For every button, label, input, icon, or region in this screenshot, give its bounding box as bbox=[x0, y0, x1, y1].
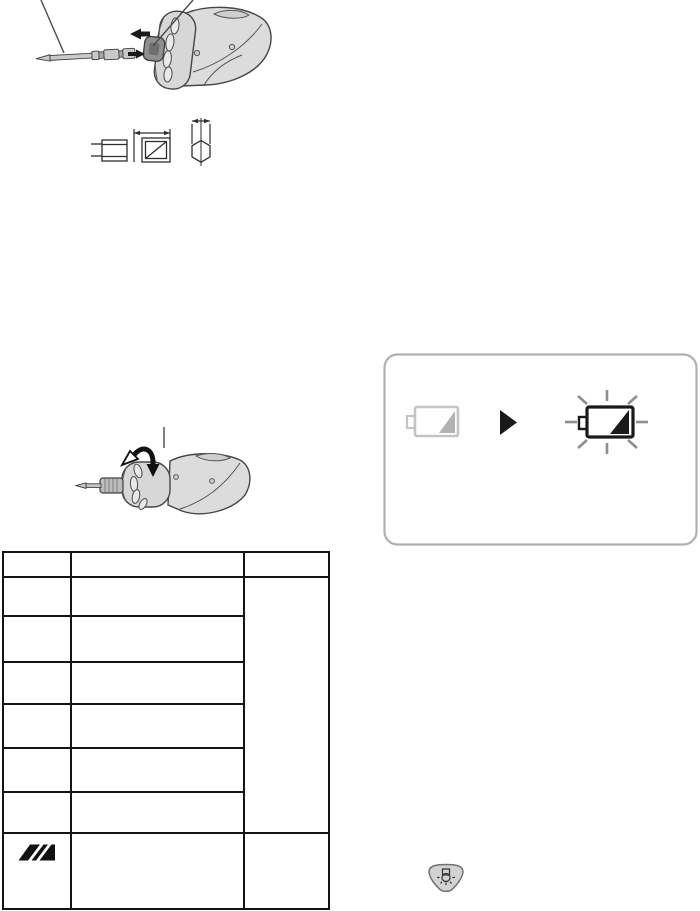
table-cell bbox=[3, 662, 71, 704]
table-cell bbox=[3, 704, 71, 748]
table-cell bbox=[244, 833, 329, 909]
led-light-button-icon bbox=[426, 862, 466, 896]
battery-indicator-panel bbox=[383, 353, 698, 546]
chuck-icon bbox=[143, 36, 166, 62]
table-cell bbox=[71, 577, 244, 616]
table-cell bbox=[3, 616, 71, 662]
table-cell bbox=[3, 748, 71, 792]
tool-nose-icon bbox=[143, 7, 271, 91]
figure-bit-insertion bbox=[0, 0, 290, 95]
table-cell bbox=[3, 792, 71, 833]
bit-hex-section-icon bbox=[192, 118, 210, 166]
table-row bbox=[3, 577, 329, 616]
table-row bbox=[3, 833, 329, 909]
table-merged-cell bbox=[244, 577, 329, 833]
bit-side-view-icon bbox=[91, 138, 170, 162]
table-cell bbox=[3, 577, 71, 616]
callout-leader-line bbox=[41, 0, 64, 53]
figure-collar-turn bbox=[60, 425, 260, 520]
figure-bit-dimensions bbox=[70, 98, 230, 178]
table-cell-with-icon bbox=[3, 833, 71, 909]
table-header-cell bbox=[71, 552, 244, 577]
table-cell bbox=[71, 792, 244, 833]
display-blinking-icon bbox=[17, 841, 57, 863]
table-cell bbox=[71, 662, 244, 704]
manual-page bbox=[0, 0, 700, 911]
table-cell bbox=[71, 616, 244, 662]
tool-nose-with-bit-icon bbox=[76, 454, 250, 514]
panel-border bbox=[385, 355, 697, 545]
table-header-row bbox=[3, 552, 329, 577]
indicator-table bbox=[2, 551, 330, 910]
screwdriver-bit-icon bbox=[36, 48, 135, 64]
table-cell bbox=[71, 704, 244, 748]
table-header-cell bbox=[3, 552, 71, 577]
battery-low-dim-icon bbox=[407, 407, 458, 436]
table-cell bbox=[71, 833, 244, 909]
table-cell bbox=[71, 748, 244, 792]
table-header-cell bbox=[244, 552, 329, 577]
